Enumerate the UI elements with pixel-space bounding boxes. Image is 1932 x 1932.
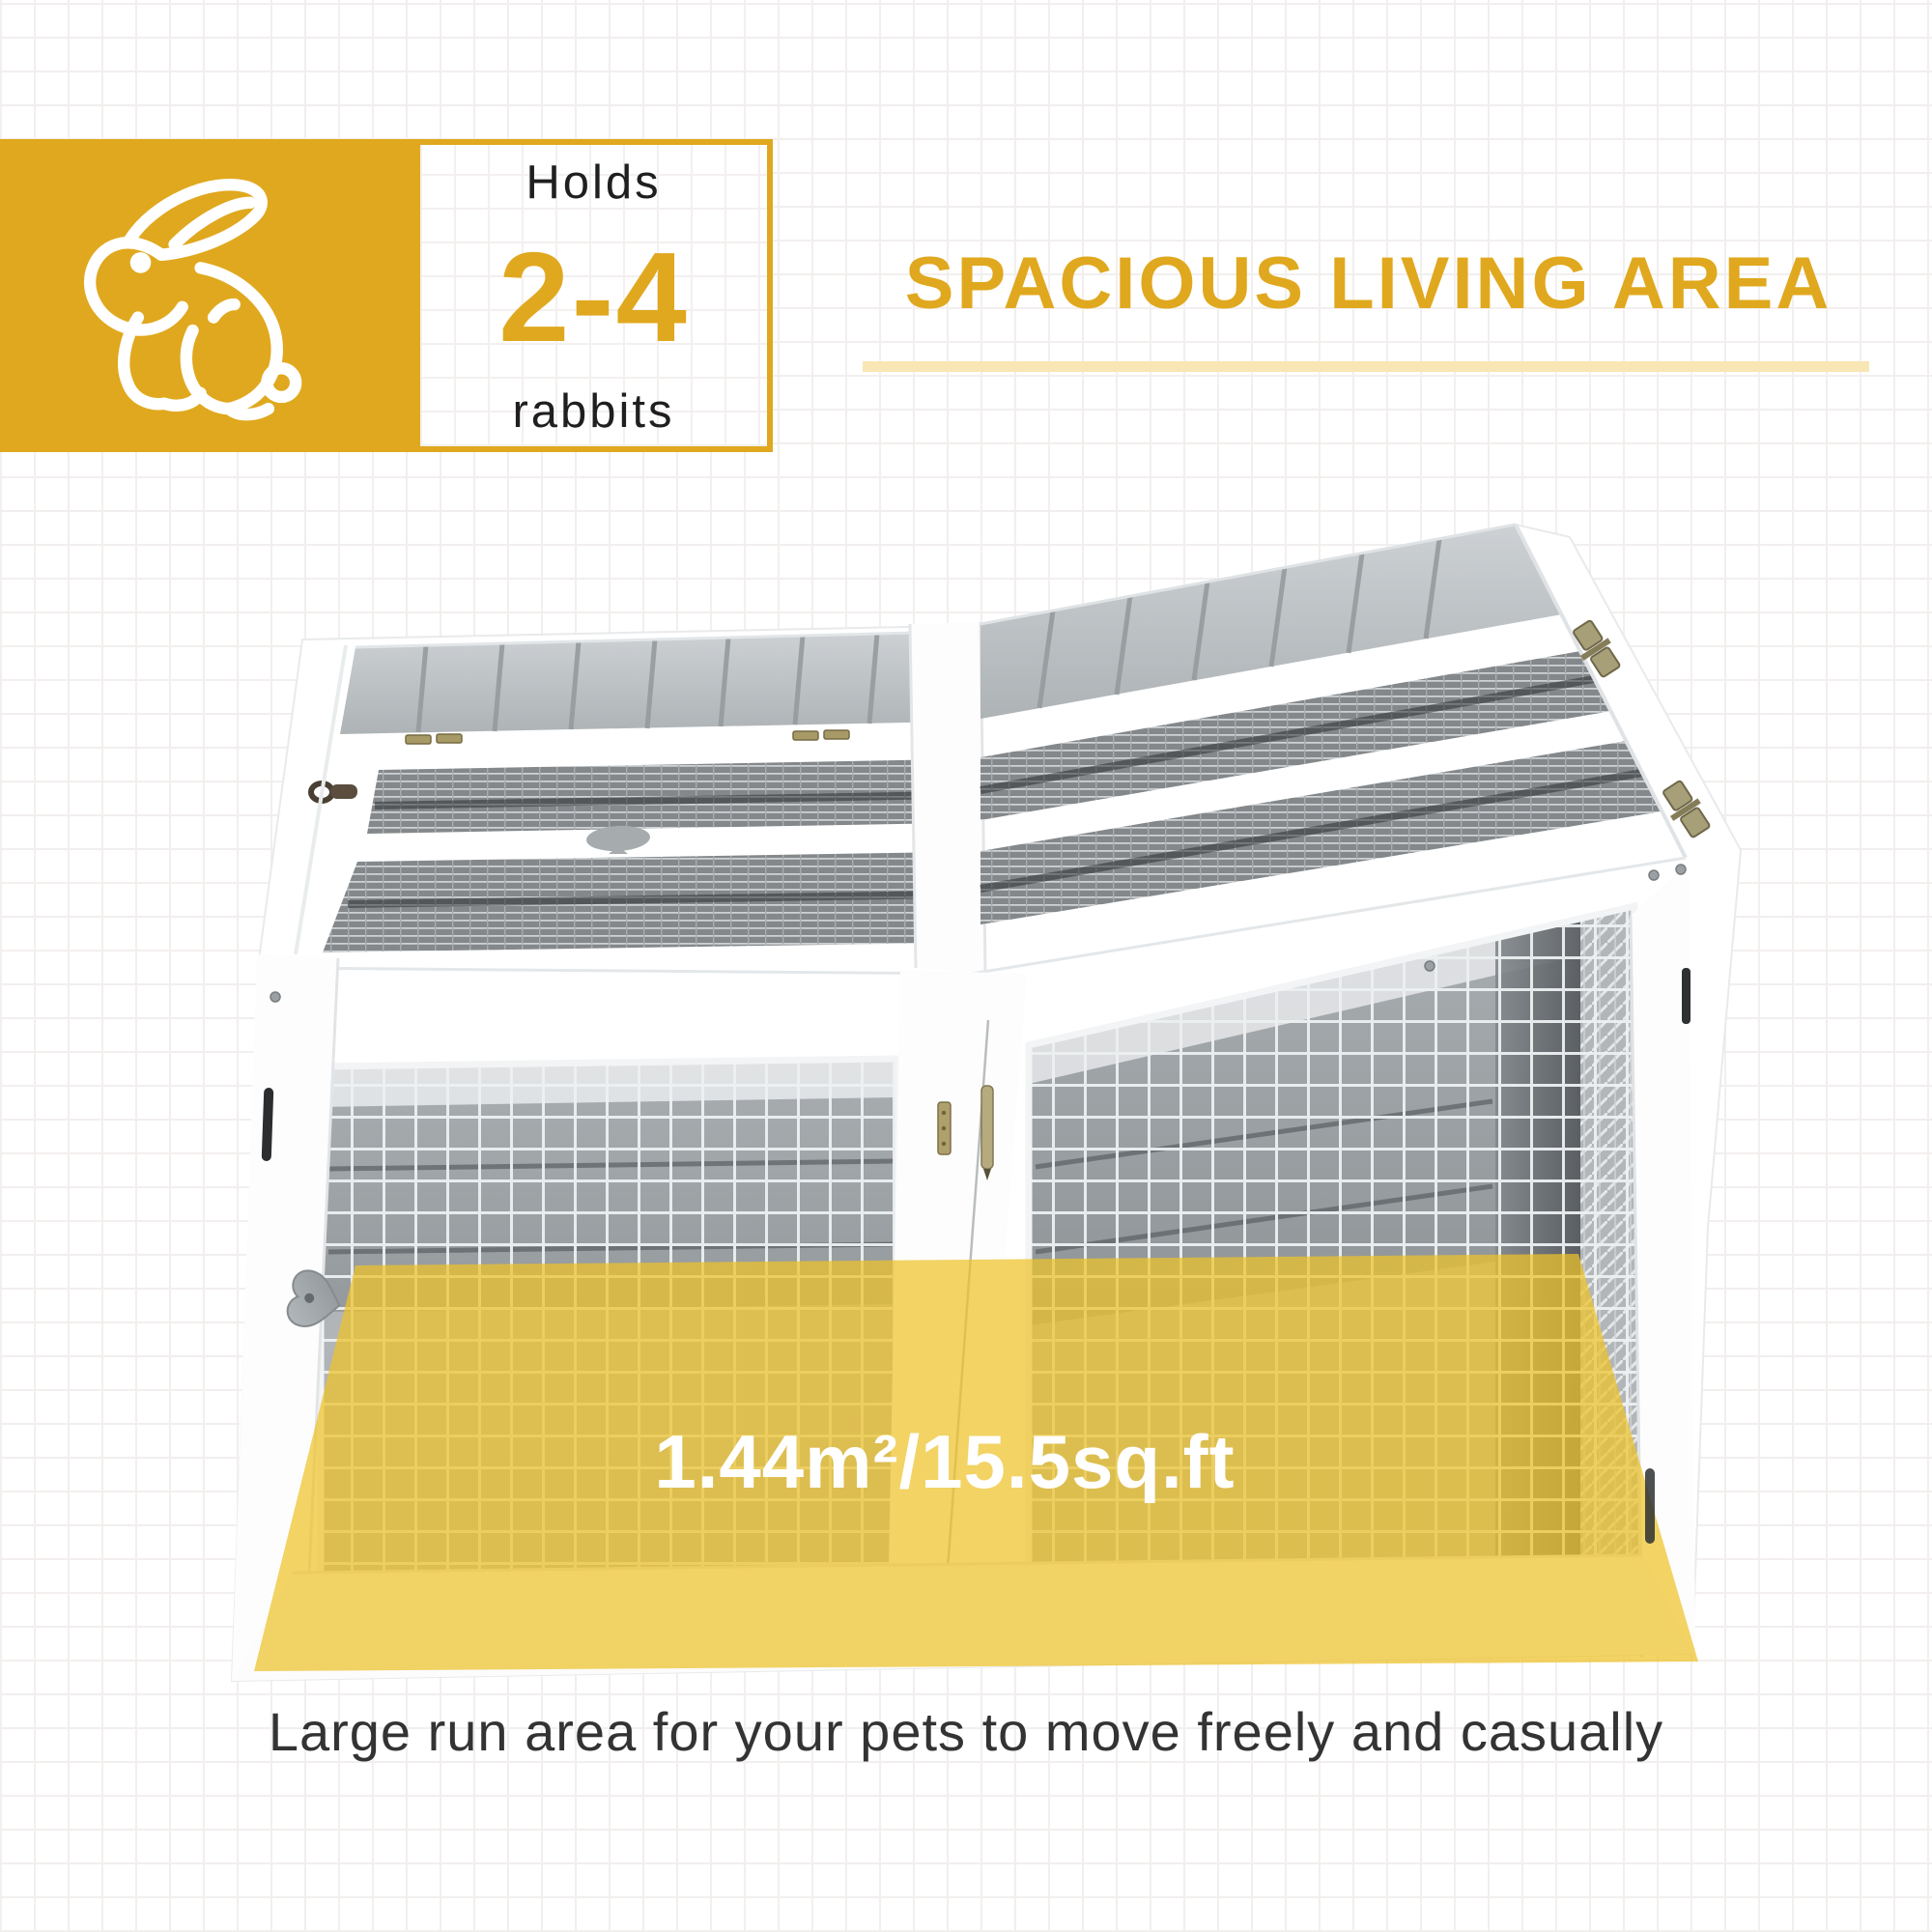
hutch-product-image: 1.44m²/15.5sq.ft [0,0,1932,1932]
screw [1649,870,1659,880]
area-label: 1.44m²/15.5sq.ft [654,1419,1235,1504]
caption-text: Large run area for your pets to move fre… [0,1700,1932,1763]
screw [1676,865,1686,874]
floor-area-overlay: 1.44m²/15.5sq.ft [254,1254,1698,1671]
door-slot-right-upper [1682,968,1690,1024]
door-slot-right-lower [1645,1468,1655,1544]
roof-divider [910,622,985,972]
screw [270,992,280,1002]
screw [1425,961,1435,971]
roof-left [296,632,952,954]
